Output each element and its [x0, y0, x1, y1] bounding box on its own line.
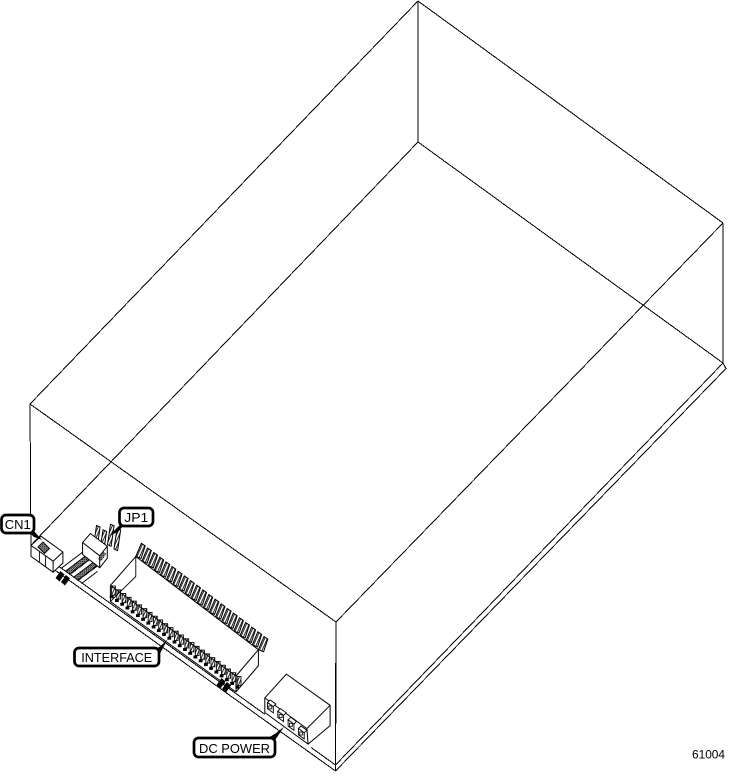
- svg-text:DC POWER: DC POWER: [199, 742, 270, 756]
- svg-text:CN1: CN1: [5, 518, 31, 532]
- svg-text:INTERFACE: INTERFACE: [81, 651, 152, 665]
- svg-text:JP1: JP1: [124, 511, 148, 525]
- svg-text:61004: 61004: [692, 748, 725, 762]
